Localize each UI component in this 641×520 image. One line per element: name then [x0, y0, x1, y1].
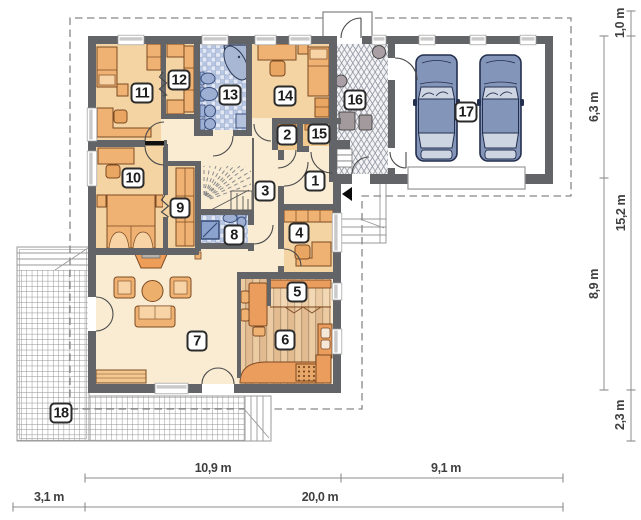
- svg-text:16: 16: [348, 93, 363, 109]
- svg-text:9: 9: [176, 201, 184, 217]
- svg-text:6: 6: [281, 333, 289, 349]
- svg-text:4: 4: [295, 226, 303, 242]
- svg-text:17: 17: [459, 105, 474, 121]
- svg-text:8,9 m: 8,9 m: [587, 269, 601, 299]
- svg-text:8: 8: [230, 228, 238, 244]
- svg-text:7: 7: [193, 334, 201, 350]
- svg-text:15: 15: [312, 127, 327, 143]
- svg-text:9,1 m: 9,1 m: [431, 461, 461, 475]
- svg-text:5: 5: [293, 285, 301, 301]
- svg-text:15,2 m: 15,2 m: [614, 194, 628, 231]
- svg-text:10,9 m: 10,9 m: [195, 461, 232, 475]
- svg-text:14: 14: [278, 89, 293, 105]
- svg-text:18: 18: [54, 406, 69, 422]
- svg-text:3: 3: [261, 184, 269, 200]
- svg-text:3,1 m: 3,1 m: [34, 490, 64, 504]
- svg-text:6,3 m: 6,3 m: [587, 92, 601, 122]
- svg-text:2: 2: [283, 128, 291, 144]
- svg-text:2,3 m: 2,3 m: [613, 400, 627, 430]
- svg-text:10: 10: [126, 171, 141, 187]
- svg-text:1: 1: [311, 174, 319, 190]
- svg-text:13: 13: [223, 88, 238, 104]
- svg-text:1,0 m: 1,0 m: [613, 8, 627, 38]
- svg-text:12: 12: [172, 73, 187, 89]
- svg-text:20,0 m: 20,0 m: [302, 490, 339, 504]
- svg-text:11: 11: [135, 86, 150, 102]
